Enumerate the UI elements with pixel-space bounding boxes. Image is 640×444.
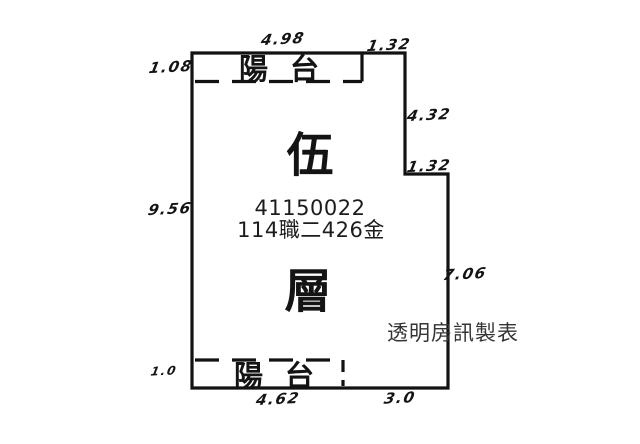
dim-right-step-width: 1.32: [405, 156, 452, 176]
balcony-bottom-label: 陽台: [212, 353, 336, 395]
dim-top-right-width: 1.32: [365, 35, 412, 55]
watermark-text: 透明房訊製表: [387, 317, 519, 347]
dim-bottom-left-width: 4.62: [254, 389, 301, 409]
floor-char-bottom: 層: [285, 253, 332, 322]
dim-left-height: 9.56: [146, 199, 193, 219]
case-number: 114職二426金: [237, 214, 385, 244]
dim-balcony-bottom-height: 1.0: [150, 363, 179, 378]
dim-right-upper-height: 4.32: [405, 105, 452, 125]
dim-balcony-top-height: 1.08: [147, 57, 194, 77]
dim-top-width: 4.98: [259, 29, 306, 49]
balcony-top-label: 陽台: [217, 46, 341, 88]
floorplan-scan: 陽台 陽台 伍 層 41150022 114職二426金 透明房訊製表 4.98…: [0, 0, 640, 444]
dim-right-lower-height: 7.06: [441, 264, 488, 284]
floor-char-top: 伍: [287, 117, 334, 186]
dim-bottom-right-width: 3.0: [383, 388, 418, 408]
